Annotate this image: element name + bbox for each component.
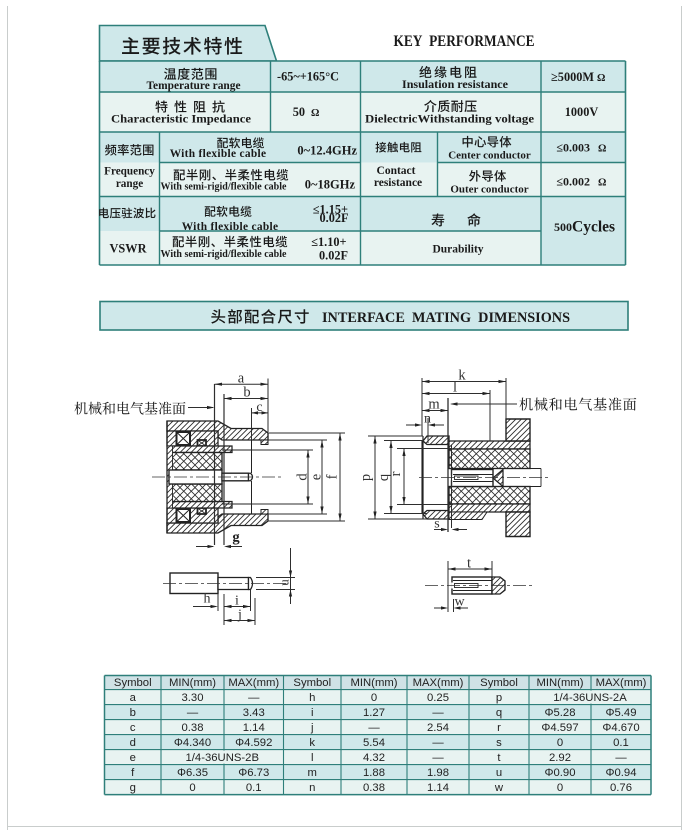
svg-text:p: p: [358, 474, 374, 481]
svg-text:j: j: [310, 722, 314, 734]
svg-text:0.1: 0.1: [613, 737, 629, 749]
svg-text:1.98: 1.98: [427, 767, 449, 779]
svg-text:MAX(mm): MAX(mm): [596, 677, 647, 689]
svg-text:MAX(mm): MAX(mm): [413, 677, 464, 689]
svg-text:Durability: Durability: [432, 243, 483, 255]
svg-text:MIN(mm): MIN(mm): [169, 677, 216, 689]
svg-text:INTERFACE MATING DIMENSIONS: INTERFACE MATING DIMENSIONS: [322, 310, 570, 326]
svg-text:KEY PERFORMANCE: KEY PERFORMANCE: [394, 33, 535, 50]
svg-text:5.54: 5.54: [363, 737, 385, 749]
svg-text:≥5000M: ≥5000M: [551, 70, 594, 84]
svg-text:0: 0: [557, 737, 563, 749]
svg-text:—: —: [432, 707, 444, 719]
svg-text:Symbol: Symbol: [480, 677, 518, 689]
svg-text:0~18GHz: 0~18GHz: [305, 178, 356, 192]
svg-text:DielectricWithstanding voltage: DielectricWithstanding voltage: [365, 114, 534, 126]
svg-text:Φ0.90: Φ0.90: [544, 767, 575, 779]
svg-text:s: s: [496, 737, 502, 749]
svg-text:l: l: [311, 752, 314, 764]
svg-text:1/4-36UNS-2B: 1/4-36UNS-2B: [186, 752, 259, 764]
svg-text:Temperature range: Temperature range: [147, 80, 241, 92]
svg-text:a: a: [130, 692, 137, 704]
svg-text:0: 0: [557, 782, 563, 794]
svg-text:1.14: 1.14: [243, 722, 265, 734]
svg-text:4.32: 4.32: [363, 752, 385, 764]
svg-text:—: —: [432, 752, 444, 764]
svg-text:Ω: Ω: [598, 177, 606, 188]
svg-text:i: i: [311, 707, 314, 719]
svg-text:b: b: [130, 707, 136, 719]
svg-text:—: —: [368, 722, 380, 734]
svg-text:3.30: 3.30: [182, 692, 204, 704]
svg-text:0: 0: [371, 692, 377, 704]
svg-text:Φ0.94: Φ0.94: [605, 767, 636, 779]
svg-text:Φ4.670: Φ4.670: [602, 722, 639, 734]
svg-text:≤1.10+: ≤1.10+: [311, 235, 346, 249]
svg-text:u: u: [496, 767, 502, 779]
svg-text:q: q: [496, 707, 502, 719]
svg-text:VSWR: VSWR: [110, 241, 147, 255]
svg-text:Ω: Ω: [311, 108, 319, 119]
svg-text:0.38: 0.38: [182, 722, 204, 734]
svg-text:Φ5.49: Φ5.49: [605, 707, 636, 719]
svg-text:Φ4.340: Φ4.340: [174, 737, 211, 749]
svg-text:0.76: 0.76: [610, 782, 632, 794]
svg-text:k: k: [458, 368, 466, 384]
svg-text:c: c: [256, 400, 262, 415]
svg-text:With semi-rigid/flexible cable: With semi-rigid/flexible cable: [161, 182, 287, 193]
svg-text:—: —: [248, 692, 260, 704]
svg-text:Φ6.35: Φ6.35: [177, 767, 208, 779]
svg-text:Φ6.73: Φ6.73: [238, 767, 269, 779]
svg-text:k: k: [309, 737, 315, 749]
svg-text:0~12.4GHz: 0~12.4GHz: [297, 143, 357, 157]
svg-text:Outer conductor: Outer conductor: [450, 184, 528, 196]
svg-text:w: w: [494, 782, 504, 794]
svg-text:m: m: [428, 396, 440, 412]
svg-text:—: —: [187, 707, 199, 719]
svg-text:With flexible cable: With flexible cable: [182, 221, 279, 233]
svg-text:1.27: 1.27: [363, 707, 385, 719]
svg-text:Center conductor: Center conductor: [448, 150, 531, 162]
svg-text:r: r: [388, 471, 404, 476]
svg-text:MAX(mm): MAX(mm): [228, 677, 279, 689]
svg-text:b: b: [243, 385, 250, 401]
svg-text:d: d: [130, 737, 136, 749]
svg-text:50: 50: [293, 105, 305, 119]
svg-text:—: —: [432, 737, 444, 749]
svg-text:500: 500: [554, 220, 572, 234]
svg-text:Symbol: Symbol: [293, 677, 331, 689]
svg-text:Ω: Ω: [597, 73, 605, 84]
svg-text:2.92: 2.92: [549, 752, 571, 764]
svg-text:0.1: 0.1: [246, 782, 262, 794]
svg-text:Characteristic Impedance: Characteristic Impedance: [111, 114, 251, 126]
svg-text:With semi-rigid/flexible cable: With semi-rigid/flexible cable: [161, 249, 287, 260]
svg-text:1.14: 1.14: [427, 782, 449, 794]
svg-text:1.88: 1.88: [363, 767, 385, 779]
svg-text:h: h: [204, 591, 211, 606]
svg-text:e: e: [130, 752, 136, 764]
svg-text:3.43: 3.43: [243, 707, 265, 719]
svg-text:MIN(mm): MIN(mm): [350, 677, 397, 689]
svg-text:p: p: [496, 692, 502, 704]
svg-text:c: c: [130, 722, 136, 734]
svg-text:—: —: [615, 752, 627, 764]
svg-text:0.25: 0.25: [427, 692, 449, 704]
svg-text:Φ4.592: Φ4.592: [235, 737, 272, 749]
svg-text:-65~+165°C: -65~+165°C: [277, 70, 339, 84]
svg-text:u: u: [277, 579, 292, 586]
svg-text:resistance: resistance: [374, 177, 422, 189]
svg-text:m: m: [308, 767, 317, 779]
svg-text:0.38: 0.38: [363, 782, 385, 794]
svg-text:2.54: 2.54: [427, 722, 449, 734]
svg-text:n: n: [309, 782, 315, 794]
svg-text:Φ4.597: Φ4.597: [541, 722, 578, 734]
svg-text:r: r: [497, 722, 501, 734]
svg-text:1000V: 1000V: [565, 105, 599, 119]
svg-text:range: range: [116, 178, 143, 190]
svg-text:0.02F: 0.02F: [319, 211, 348, 225]
svg-text:Ω: Ω: [598, 144, 606, 155]
svg-text:1/4-36UNS-2A: 1/4-36UNS-2A: [553, 692, 627, 704]
svg-text:n: n: [424, 411, 431, 426]
svg-text:MIN(mm): MIN(mm): [536, 677, 583, 689]
svg-text:Symbol: Symbol: [114, 677, 152, 689]
svg-text:0: 0: [189, 782, 195, 794]
svg-text:h: h: [309, 692, 315, 704]
svg-text:l: l: [453, 380, 457, 396]
svg-text:Insulation resistance: Insulation resistance: [402, 79, 508, 91]
svg-text:Φ5.28: Φ5.28: [544, 707, 575, 719]
svg-text:With flexible cable: With flexible cable: [170, 148, 267, 160]
svg-text:f: f: [325, 474, 341, 479]
svg-text:g: g: [232, 530, 240, 546]
svg-text:e: e: [309, 474, 325, 480]
svg-text:≤0.003: ≤0.003: [556, 141, 590, 155]
svg-text:Frequency: Frequency: [104, 166, 155, 178]
svg-text:Contact: Contact: [377, 165, 416, 177]
svg-text:0.02F: 0.02F: [319, 248, 348, 262]
svg-text:Cycles: Cycles: [572, 219, 615, 236]
svg-text:g: g: [130, 782, 136, 794]
svg-text:≤0.002: ≤0.002: [556, 174, 590, 188]
